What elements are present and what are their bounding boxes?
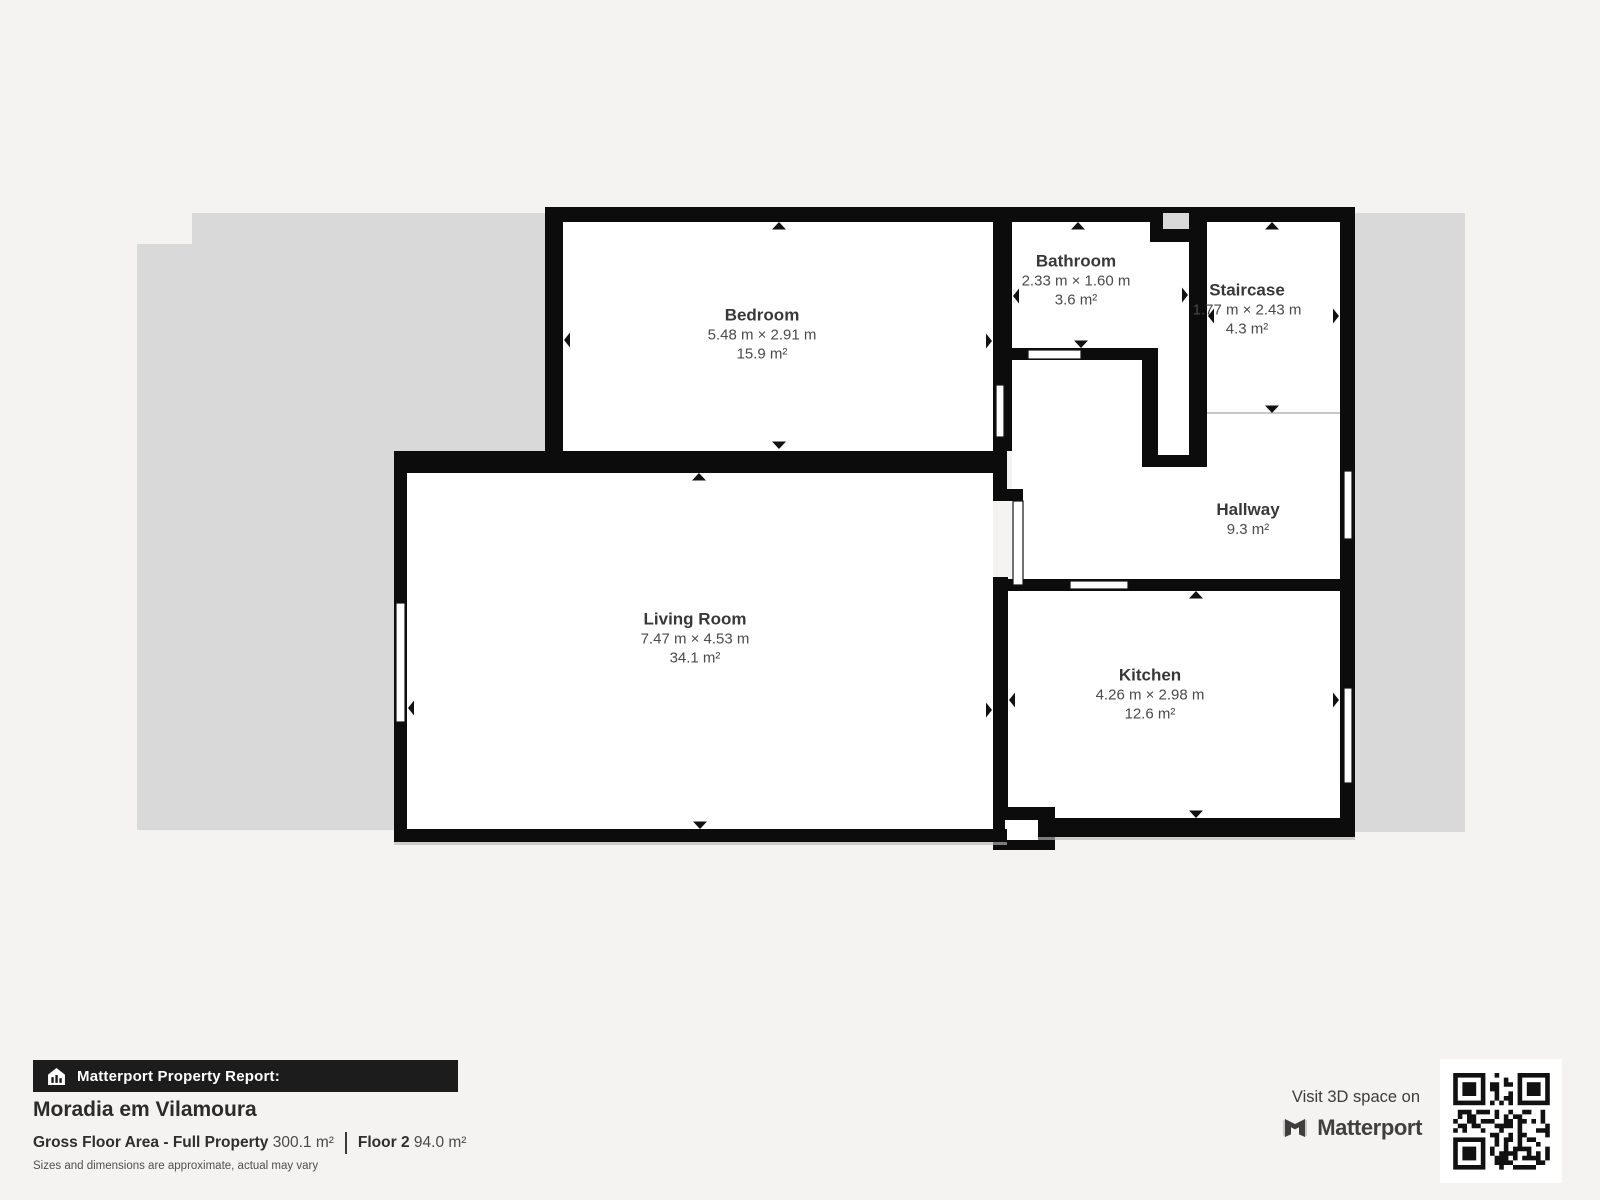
room-name: Bedroom bbox=[708, 305, 817, 326]
visit-3d-space: Visit 3D space on Matterport bbox=[1230, 1088, 1422, 1142]
gross-floor-area-label: Gross Floor Area - Full Property bbox=[33, 1134, 268, 1151]
visit-label: Visit 3D space on bbox=[1230, 1088, 1420, 1107]
room-dimensions: 4.26 m × 2.98 m bbox=[1096, 686, 1205, 705]
report-bar-label: Matterport Property Report: bbox=[77, 1068, 280, 1085]
report-title-bar: Matterport Property Report: bbox=[33, 1060, 458, 1092]
matterport-logo: Matterport bbox=[1230, 1114, 1422, 1142]
qr-code bbox=[1440, 1059, 1562, 1183]
room-name: Living Room bbox=[641, 609, 750, 630]
room-name: Bathroom bbox=[1022, 251, 1131, 272]
room-area: 9.3 m² bbox=[1216, 520, 1279, 539]
floor-label: Floor 2 bbox=[358, 1134, 410, 1151]
room-label-bathroom: Bathroom 2.33 m × 1.60 m 3.6 m² bbox=[1022, 251, 1131, 310]
matterport-logo-icon bbox=[1281, 1114, 1309, 1142]
disclaimer-text: Sizes and dimensions are approximate, ac… bbox=[33, 1160, 318, 1172]
room-label-bedroom: Bedroom 5.48 m × 2.91 m 15.9 m² bbox=[708, 305, 817, 364]
property-report-page: Bedroom 5.48 m × 2.91 m 15.9 m² Bathroom… bbox=[0, 0, 1600, 1200]
room-name: Staircase bbox=[1193, 280, 1302, 301]
divider bbox=[345, 1132, 347, 1154]
room-dimensions: 5.48 m × 2.91 m bbox=[708, 326, 817, 345]
room-area: 12.6 m² bbox=[1096, 705, 1205, 724]
room-area: 15.9 m² bbox=[708, 345, 817, 364]
room-area: 4.3 m² bbox=[1193, 320, 1302, 339]
gross-floor-area-value: 300.1 m² bbox=[273, 1134, 334, 1151]
room-label-kitchen: Kitchen 4.26 m × 2.98 m 12.6 m² bbox=[1096, 665, 1205, 724]
room-name: Hallway bbox=[1216, 499, 1279, 520]
room-dimensions: 2.33 m × 1.60 m bbox=[1022, 272, 1131, 291]
room-area: 34.1 m² bbox=[641, 649, 750, 668]
house-report-icon bbox=[47, 1067, 66, 1086]
room-dimensions: 7.47 m × 4.53 m bbox=[641, 630, 750, 649]
floor-area-summary: Gross Floor Area - Full Property 300.1 m… bbox=[33, 1132, 466, 1154]
room-area: 3.6 m² bbox=[1022, 291, 1131, 310]
matterport-wordmark: Matterport bbox=[1317, 1115, 1422, 1141]
room-label-living-room: Living Room 7.47 m × 4.53 m 34.1 m² bbox=[641, 609, 750, 668]
property-name: Moradia em Vilamoura bbox=[33, 1098, 257, 1122]
room-name: Kitchen bbox=[1096, 665, 1205, 686]
floor-plan bbox=[0, 0, 1600, 1200]
room-label-hallway: Hallway 9.3 m² bbox=[1216, 499, 1279, 539]
room-dimensions: 1.77 m × 2.43 m bbox=[1193, 301, 1302, 320]
floor-value: 94.0 m² bbox=[414, 1134, 467, 1151]
room-label-staircase: Staircase 1.77 m × 2.43 m 4.3 m² bbox=[1193, 280, 1302, 339]
